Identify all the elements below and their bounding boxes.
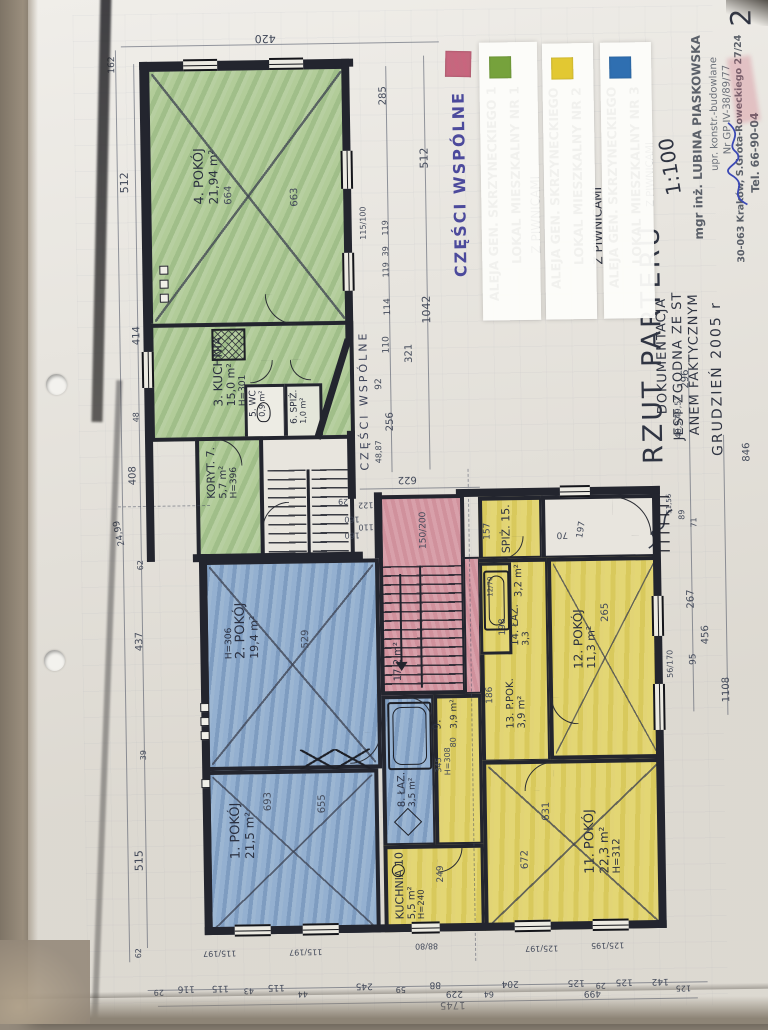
label-spiz6: 6. SPIŻ. 1,0 m² — [289, 389, 309, 424]
dim-left-7: 437 — [134, 632, 145, 651]
window-room4-top-1 — [183, 59, 217, 72]
window-room4-top-2 — [269, 57, 303, 70]
dim-green-5: 119 — [382, 262, 391, 277]
room4-diagonals — [151, 71, 345, 322]
wall-stairbay-right — [347, 431, 356, 499]
window-room11-bottom-1 — [515, 920, 551, 933]
toilet-room5 — [256, 402, 270, 422]
dim-mid-70: 70 — [556, 529, 568, 539]
vent-blue-1 — [200, 703, 209, 712]
vent-green-3 — [160, 294, 169, 303]
dim-green-2: 115/100 — [359, 206, 368, 239]
stairs-pink-steps — [382, 565, 464, 688]
room12-diagonals — [553, 562, 657, 754]
room14-area: 3,3 — [521, 604, 532, 646]
dim-right-8: 456 — [700, 625, 711, 644]
dim-stair-110: 110 — [358, 522, 373, 531]
sink-room10 — [392, 864, 405, 877]
photo-of-floor-plan: { "page": { "number": "2" }, "legend": {… — [0, 0, 768, 1024]
room13-area: 3,9 m² — [516, 678, 528, 729]
dim-green-0: 285 — [377, 86, 388, 105]
window-room12-right-2 — [653, 684, 666, 730]
stair-door-dim: 150/200 — [418, 512, 429, 550]
dim-stair-122: 122 — [358, 500, 373, 509]
dim-green-3: 119 — [382, 220, 391, 235]
vent-blue-3 — [201, 731, 210, 740]
punch-hole-bottom — [44, 650, 65, 671]
dim-win-1: 115/197 — [289, 947, 322, 957]
window-kuchnia3-left — [142, 352, 155, 388]
stamp-role: upr. konstr.-budowlane — [708, 57, 721, 171]
dim-left-4: 408 — [127, 466, 138, 485]
vent-green-1 — [159, 266, 168, 275]
legend-sticker-1 — [479, 42, 541, 321]
legend-swatch-nr1 — [489, 56, 511, 78]
remark-line1: DOKUMENTACJA — [655, 298, 671, 414]
remark-line4: GRUDZIEŃ 2005 r — [709, 301, 727, 456]
room11-diagonals — [488, 764, 659, 925]
room9-area: 3,9 m² — [449, 699, 460, 729]
legend-common-label: CZĘŚCI WSPÓLNE — [450, 91, 471, 277]
dim-win-4: 125/195 — [591, 941, 624, 951]
dim-left-10: 62 — [135, 948, 144, 958]
dim-right-6: 71 — [690, 517, 699, 527]
label-laz8: 8. ŁAZ. 3,5 m² — [396, 772, 418, 808]
dim-mid-157: 157 — [482, 523, 492, 540]
fabric-corner-bottom-left — [0, 940, 90, 1024]
dim-win-0: 115/197 — [203, 949, 236, 959]
dim-win-2: 88/80 — [415, 941, 438, 950]
dim-green-10: 92 — [374, 378, 384, 390]
window-room1-bottom-1 — [235, 924, 271, 937]
dim-green-9: 321 — [404, 344, 415, 363]
room9-d2: 80 — [450, 737, 459, 747]
dim-right-3: 846 — [741, 442, 752, 461]
vent-blue-4 — [201, 779, 210, 788]
label-room9: 9. — [431, 719, 443, 730]
stairs-green-run2 — [312, 469, 349, 554]
window-room4-right-1 — [341, 151, 354, 189]
window-room1-bottom-2 — [303, 923, 339, 936]
stairs-arrow-head — [396, 662, 408, 671]
dim-mid-186: 186 — [485, 687, 495, 704]
dim-left-9: 515 — [133, 850, 146, 871]
label-laz14: 14. ŁAZ. 3,3 — [510, 604, 532, 646]
legend-sticker-3 — [600, 42, 655, 319]
legend-swatch-nr2 — [551, 57, 573, 79]
room10-name: KUCHNIA 10 — [394, 852, 407, 920]
table-surface-bottom — [0, 996, 768, 1024]
table-surface-left — [0, 0, 38, 1024]
dim-right-10: 56/170 — [666, 650, 675, 678]
vent-green-2 — [160, 280, 169, 289]
legend-swatch-nr3 — [609, 56, 631, 78]
punch-hole-top — [46, 374, 67, 395]
bathtub-room14 — [483, 570, 510, 630]
room15-area: 3,2 m² — [513, 564, 525, 597]
label-ppok13: 13. P.POK. 3,9 m² — [505, 678, 528, 729]
dim-green-12: 48,87 — [375, 440, 384, 463]
stove-symbol — [211, 328, 245, 361]
stamp-signature — [720, 118, 759, 209]
dim-green-4: 39 — [382, 246, 391, 256]
room14-name: 14. ŁAZ. — [510, 604, 522, 646]
room8-area: 3,5 m² — [407, 772, 418, 807]
room9-d1: 345 — [435, 757, 444, 772]
legend-swatch-common — [445, 51, 471, 77]
window-room4-right-2 — [342, 253, 355, 291]
room9-height: H=308 — [444, 747, 453, 775]
dim-win-3: 125/197 — [525, 944, 558, 954]
window-room12-right — [652, 596, 665, 636]
window-entry-top — [560, 485, 590, 497]
label-kuchnia10: KUCHNIA 10 5,5 m² H=240 — [394, 852, 428, 920]
room10-height: H=240 — [417, 852, 428, 920]
wall-pink-left — [374, 492, 383, 558]
label-czesci-wspolne-plan: CZĘŚCI WSPÓLNE — [357, 330, 372, 470]
vent-blue-2 — [200, 717, 209, 726]
legend-sticker-2 — [542, 43, 597, 320]
window-kuchnia10-bottom — [412, 921, 440, 933]
dim-stair-622: 622 — [398, 474, 417, 485]
dim-left-3: 48 — [133, 412, 142, 422]
dim-left-1: 512 — [119, 172, 132, 193]
room13-name: 13. P.POK. — [505, 678, 517, 729]
remark-line2: JEST ZGODNA ZE ST — [671, 291, 688, 440]
room8-name: 8. ŁAZ. — [396, 772, 408, 807]
dim-line-right-2 — [723, 435, 728, 715]
window-room11-bottom-2 — [593, 918, 629, 931]
room1-diagonals — [212, 774, 374, 928]
dark-corner-top-right — [726, 0, 768, 26]
room6-area: 1,0 m² — [299, 389, 308, 423]
